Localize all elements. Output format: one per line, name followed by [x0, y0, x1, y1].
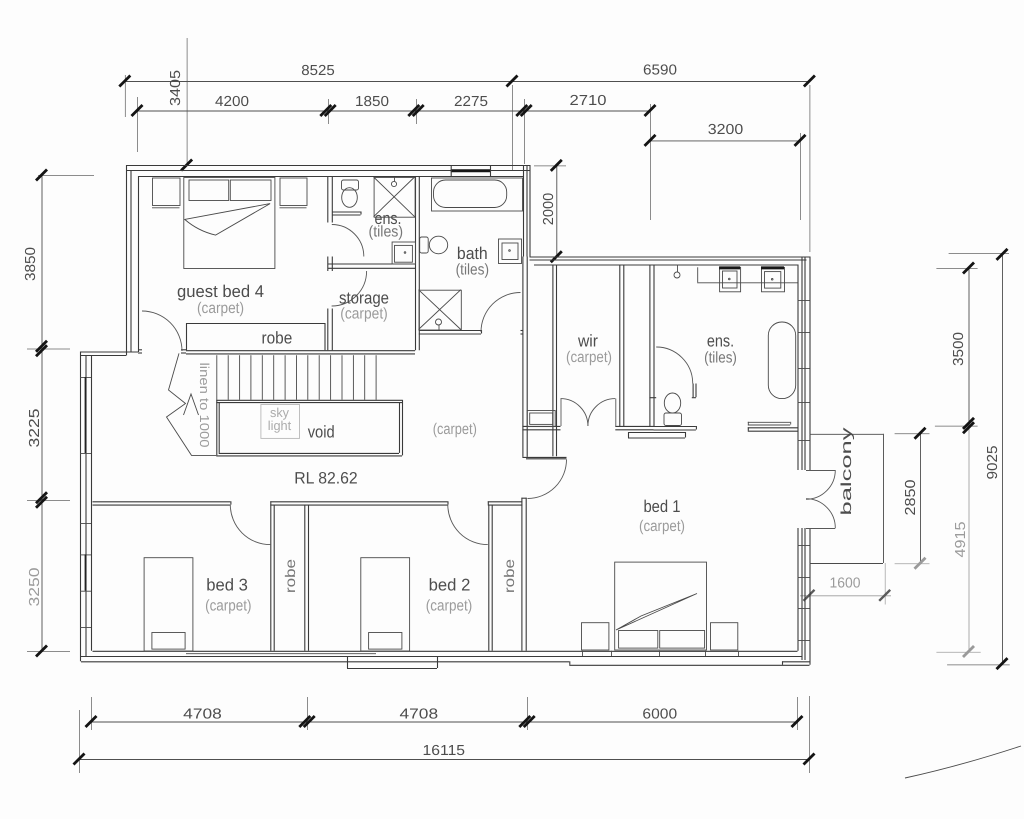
svg-text:4708: 4708 — [183, 707, 222, 723]
svg-text:(carpet): (carpet) — [566, 349, 612, 366]
svg-text:(tiles): (tiles) — [369, 224, 404, 241]
svg-text:3200: 3200 — [708, 122, 744, 138]
svg-text:6000: 6000 — [642, 707, 677, 723]
svg-text:3250: 3250 — [27, 568, 43, 607]
svg-text:bed 1: bed 1 — [643, 497, 680, 516]
svg-text:light: light — [268, 418, 292, 433]
svg-text:3225: 3225 — [27, 409, 43, 448]
svg-text:RL 82.62: RL 82.62 — [294, 470, 357, 488]
svg-text:3500: 3500 — [951, 332, 967, 366]
svg-text:bed 2: bed 2 — [429, 576, 471, 595]
svg-text:linen to 1000: linen to 1000 — [197, 363, 212, 448]
svg-text:2850: 2850 — [903, 480, 919, 516]
svg-text:void: void — [308, 423, 335, 442]
svg-text:(carpet): (carpet) — [639, 518, 685, 535]
svg-text:(tiles): (tiles) — [704, 350, 737, 367]
svg-text:4708: 4708 — [400, 707, 439, 723]
svg-text:(carpet): (carpet) — [340, 306, 388, 323]
svg-text:bed 3: bed 3 — [206, 576, 248, 595]
svg-text:4200: 4200 — [215, 94, 249, 110]
svg-text:6590: 6590 — [643, 63, 677, 79]
svg-text:guest bed 4: guest bed 4 — [177, 282, 264, 301]
svg-text:9025: 9025 — [985, 446, 1001, 480]
svg-text:16115: 16115 — [423, 743, 466, 759]
svg-text:2710: 2710 — [570, 93, 607, 109]
svg-text:(tiles): (tiles) — [456, 262, 489, 279]
svg-text:(carpet): (carpet) — [426, 598, 472, 615]
svg-text:wir: wir — [577, 332, 598, 351]
svg-text:robe: robe — [501, 559, 517, 593]
svg-text:2000: 2000 — [541, 193, 557, 226]
svg-text:3850: 3850 — [23, 247, 39, 281]
svg-text:1850: 1850 — [355, 94, 389, 110]
svg-text:(carpet): (carpet) — [205, 598, 251, 615]
svg-text:ens.: ens. — [707, 332, 734, 351]
svg-text:4915: 4915 — [953, 522, 969, 558]
svg-text:8525: 8525 — [301, 63, 335, 79]
svg-text:balcony: balcony — [839, 426, 855, 515]
svg-text:(carpet): (carpet) — [433, 421, 477, 438]
svg-text:robe: robe — [282, 559, 298, 593]
svg-text:robe: robe — [262, 329, 293, 348]
svg-text:bath: bath — [457, 244, 488, 263]
svg-text:(carpet): (carpet) — [197, 300, 244, 317]
svg-text:1600: 1600 — [830, 576, 861, 592]
svg-text:2275: 2275 — [454, 94, 488, 110]
svg-text:3405: 3405 — [168, 70, 184, 106]
